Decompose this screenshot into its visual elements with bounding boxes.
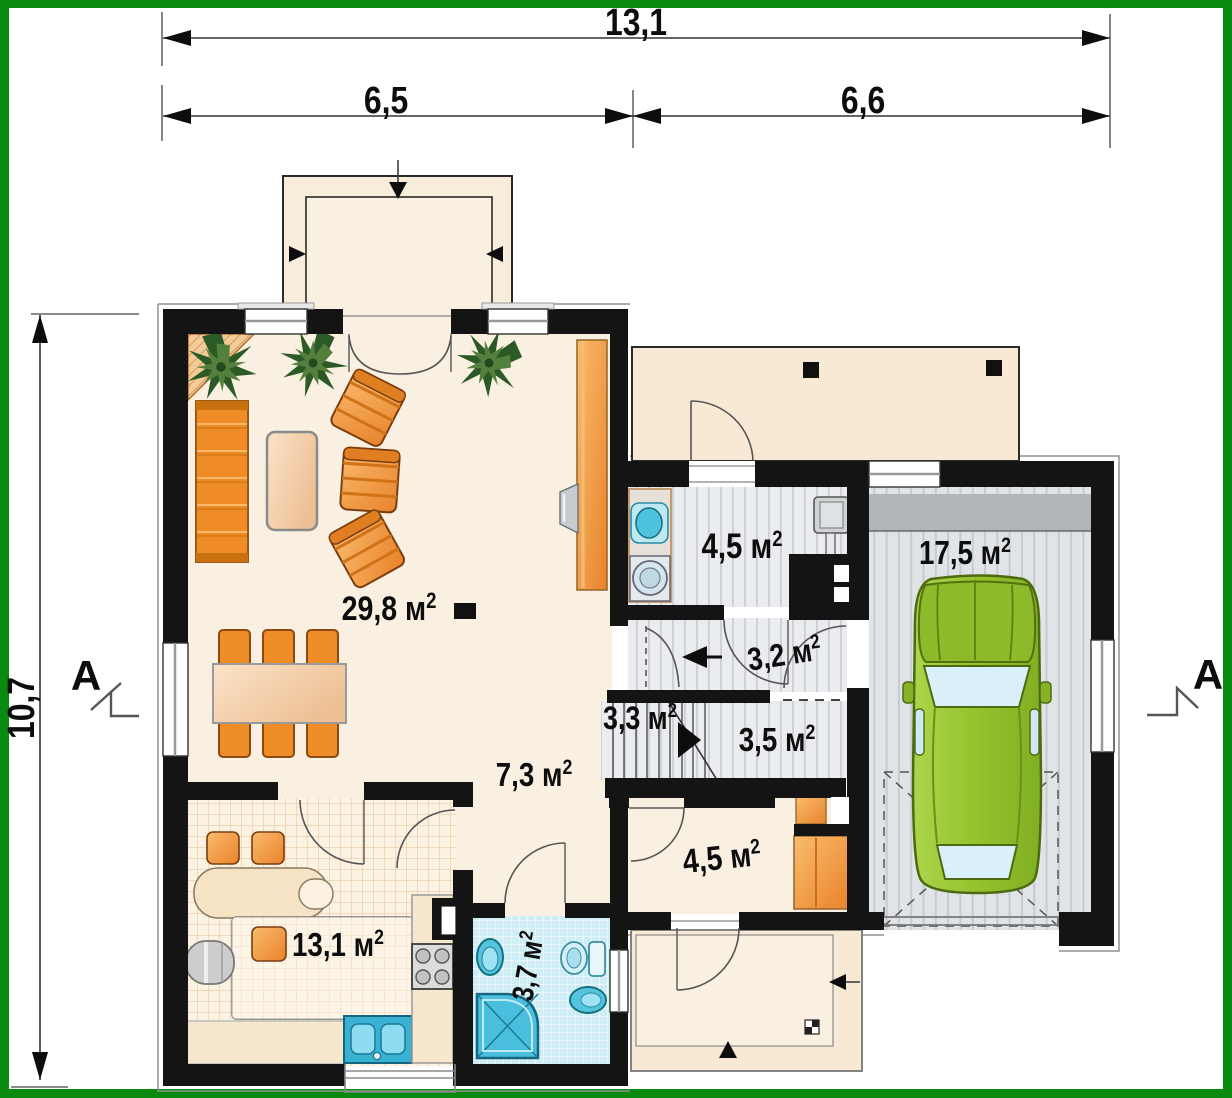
svg-text:3,3 м2: 3,3 м2 bbox=[603, 699, 677, 737]
svg-text:6,5: 6,5 bbox=[364, 79, 408, 121]
svg-text:7,3 м2: 7,3 м2 bbox=[496, 756, 573, 794]
svg-text:A: A bbox=[1193, 651, 1223, 698]
svg-text:13,1: 13,1 bbox=[605, 1, 667, 43]
svg-text:17,5 м2: 17,5 м2 bbox=[919, 534, 1011, 572]
svg-text:4,5 м2: 4,5 м2 bbox=[701, 527, 782, 566]
svg-text:A: A bbox=[71, 652, 101, 699]
svg-text:6,6: 6,6 bbox=[841, 79, 885, 121]
svg-text:29,8 м2: 29,8 м2 bbox=[342, 590, 437, 628]
svg-text:3,5 м2: 3,5 м2 bbox=[739, 721, 816, 759]
svg-text:13,1 м2: 13,1 м2 bbox=[292, 926, 384, 964]
svg-text:10,7: 10,7 bbox=[0, 677, 42, 739]
